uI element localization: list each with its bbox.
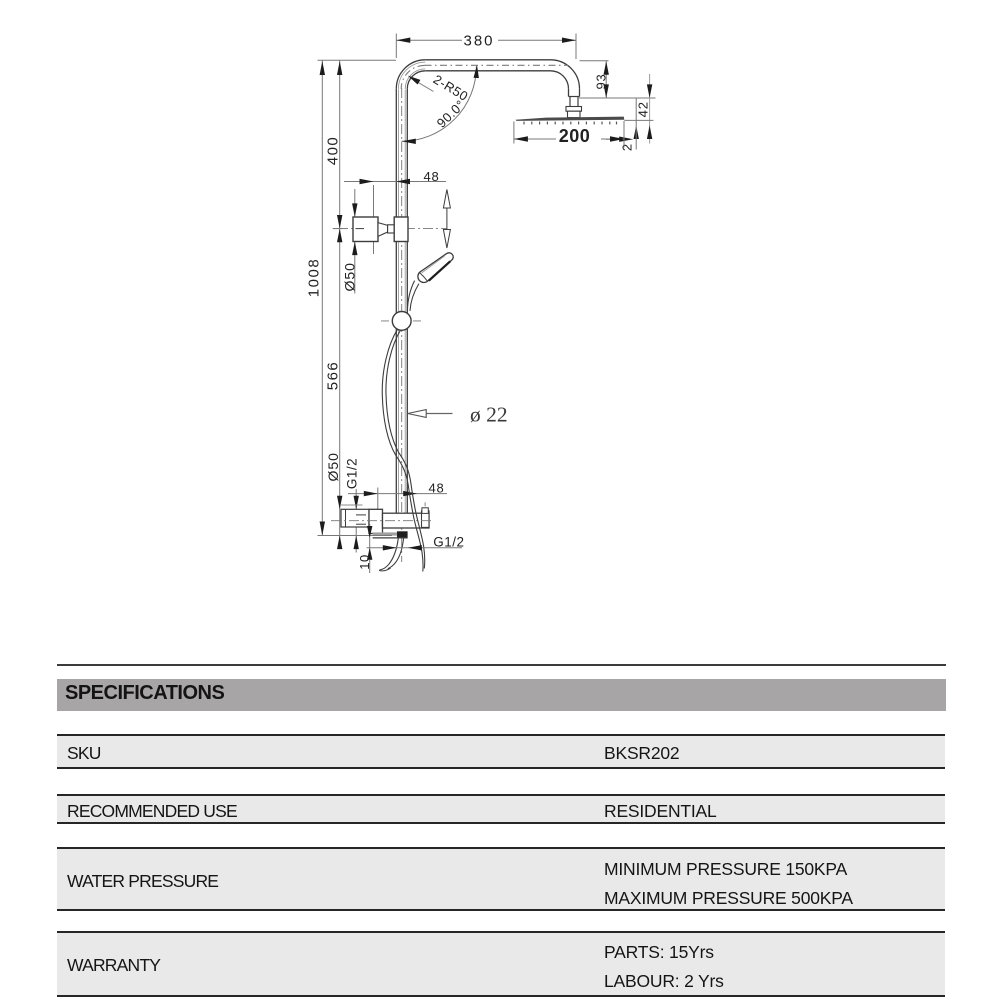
svg-text:1008: 1008 [306,258,323,297]
svg-text:2-R50: 2-R50 [431,72,471,104]
svg-text:42: 42 [635,101,650,117]
svg-text:ø 22: ø 22 [470,403,508,427]
svg-text:93: 93 [593,73,608,89]
svg-text:380: 380 [463,33,494,50]
svg-text:Ø50: Ø50 [341,262,357,291]
svg-text:Ø50: Ø50 [325,452,341,481]
svg-text:G1/2: G1/2 [345,458,360,489]
svg-text:G1/2: G1/2 [433,535,464,550]
svg-text:48: 48 [423,169,439,184]
svg-text:48: 48 [428,481,444,496]
svg-text:400: 400 [324,136,341,166]
svg-text:2: 2 [619,144,634,151]
svg-text:566: 566 [324,361,341,391]
svg-text:10: 10 [357,554,372,569]
svg-text:200: 200 [559,126,591,146]
